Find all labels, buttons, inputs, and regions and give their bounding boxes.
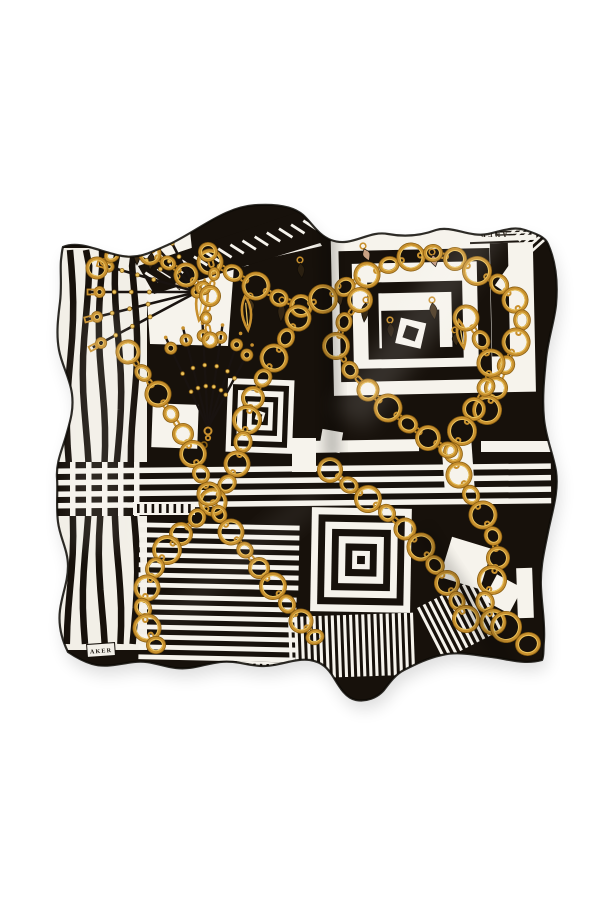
product-photo: AKER AKER [0,0,600,900]
brand-label-bottom-left: AKER [87,643,116,658]
scarf-illustration: AKER AKER [0,0,600,900]
scarf-print [48,189,568,713]
